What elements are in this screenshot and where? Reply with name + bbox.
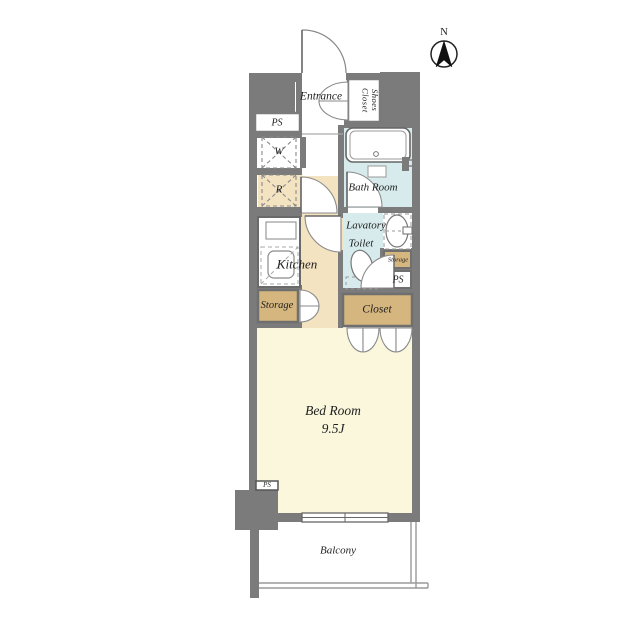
wall-lav-left-bottom xyxy=(338,250,343,290)
closet-box xyxy=(343,294,412,326)
north-compass-icon xyxy=(431,41,457,67)
wall-bath-lav-jamb xyxy=(343,207,348,213)
washer-symbol xyxy=(262,137,296,168)
wall-balcony-left xyxy=(250,530,259,598)
wall-r-counter-divider xyxy=(249,207,302,217)
wall-bottom-right xyxy=(388,513,418,522)
kitchen-counter xyxy=(258,217,300,287)
wall-washer-nook xyxy=(300,137,306,168)
floor-plan: N Entrance Shoes Closet PS W R Bath Room… xyxy=(0,0,640,640)
balcony-rail xyxy=(259,522,428,588)
lavatory-sink xyxy=(384,214,412,249)
wall-pillar-bottom-left xyxy=(235,490,278,530)
balcony-window xyxy=(302,513,388,522)
ps-top-box xyxy=(255,113,300,132)
kitchen-stove xyxy=(268,251,294,278)
kitchen-sink xyxy=(266,222,296,239)
wall-w-r-divider xyxy=(249,168,302,175)
bath-counter xyxy=(368,166,386,177)
shoes-closet-box xyxy=(348,79,380,122)
entrance-door xyxy=(302,30,346,81)
storage-left-box xyxy=(258,290,298,322)
bedroom-floor xyxy=(257,328,412,513)
wall-bath-lav-divider xyxy=(378,207,412,213)
floor-plan-drawing xyxy=(0,0,640,640)
ps-bottom-box xyxy=(256,481,278,490)
wall-top-left-block xyxy=(249,73,295,115)
wall-bath-left xyxy=(338,125,344,213)
bathtub xyxy=(346,128,410,162)
sink-faucet xyxy=(403,227,412,234)
